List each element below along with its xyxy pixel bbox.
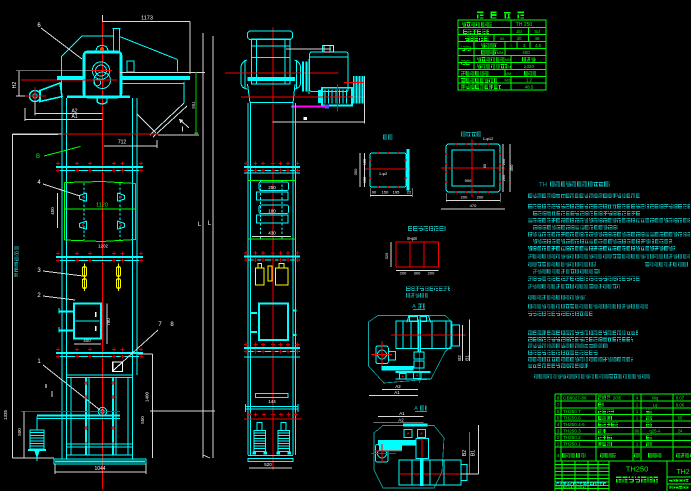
svg-text:TH250.3: TH250.3 — [563, 429, 581, 434]
svg-text:TH250.4-5: TH250.4-5 — [563, 422, 585, 427]
svg-text:450: 450 — [50, 207, 55, 215]
svg-text:65: 65 — [678, 416, 683, 421]
svg-text:II: II — [45, 384, 48, 390]
svg-text:90: 90 — [372, 190, 377, 195]
svg-text:B2: B2 — [457, 355, 462, 361]
svg-text:≥320: ≥320 — [524, 64, 534, 69]
svg-text:Sd: Sd — [534, 29, 540, 34]
svg-text:KN: KN — [505, 64, 511, 69]
svg-text:200: 200 — [502, 175, 506, 181]
svg-text:400: 400 — [522, 50, 530, 55]
svg-text:1202: 1202 — [98, 244, 109, 249]
svg-text:Mq: Mq — [652, 395, 658, 400]
svg-text:155: 155 — [363, 177, 367, 183]
svg-text:TH2: TH2 — [676, 469, 689, 476]
svg-text:900: 900 — [465, 178, 472, 183]
svg-text:195: 195 — [393, 190, 400, 195]
svg-text:A2: A2 — [398, 418, 404, 423]
svg-text:Lq: Lq — [653, 402, 658, 407]
svg-text:325: 325 — [384, 252, 389, 259]
svg-text:TH: TH — [539, 183, 547, 189]
svg-text:H2: H2 — [12, 82, 18, 89]
svg-text:8-φ8: 8-φ8 — [407, 236, 417, 241]
svg-text:A2: A2 — [395, 384, 401, 389]
svg-text:8.07: 8.07 — [676, 395, 685, 400]
svg-text:M/S: M/S — [504, 78, 511, 83]
svg-text:1044: 1044 — [94, 466, 105, 472]
svg-text:200: 200 — [502, 159, 506, 165]
svg-text:200: 200 — [428, 271, 435, 276]
svg-text:q25-A: q25-A — [649, 429, 660, 434]
svg-text:155: 155 — [363, 159, 367, 165]
svg-text:712: 712 — [118, 140, 127, 146]
svg-text:450: 450 — [509, 164, 514, 171]
svg-text:MM: MM — [505, 57, 512, 62]
svg-text:B1: B1 — [471, 450, 477, 456]
svg-text:470: 470 — [470, 203, 477, 208]
svg-text:TH250.2: TH250.2 — [563, 435, 581, 440]
svg-text:A1: A1 — [394, 390, 400, 395]
svg-text:A1: A1 — [71, 114, 77, 120]
svg-text:TH250: TH250 — [626, 465, 649, 474]
svg-text:1173: 1173 — [141, 16, 153, 22]
svg-text:l: l — [511, 43, 512, 48]
svg-text:30: 30 — [500, 36, 505, 41]
svg-text:250: 250 — [268, 185, 276, 190]
svg-text:B1: B1 — [465, 355, 470, 361]
svg-text:TH250.1: TH250.1 — [563, 442, 581, 447]
svg-text:300: 300 — [414, 271, 421, 276]
svg-text:500: 500 — [17, 428, 22, 436]
svg-text:1335: 1335 — [3, 409, 8, 420]
svg-text:MM: MM — [505, 71, 512, 76]
svg-text:1-φ2: 1-φ2 — [379, 171, 388, 176]
svg-text:430: 430 — [268, 231, 276, 236]
svg-text:48: 48 — [534, 36, 540, 41]
svg-text:180: 180 — [268, 209, 276, 214]
svg-text:200: 200 — [461, 195, 468, 200]
svg-text:24: 24 — [678, 429, 683, 434]
svg-text:30: 30 — [516, 36, 522, 41]
svg-text:B2: B2 — [462, 450, 468, 456]
svg-text:Zd: Zd — [516, 29, 522, 34]
svg-text:1-φ12: 1-φ12 — [483, 136, 494, 141]
svg-text:200: 200 — [477, 195, 484, 200]
svg-text:1.2: 1.2 — [526, 78, 533, 83]
svg-text:66: 66 — [635, 429, 640, 434]
svg-text:B: B — [36, 154, 40, 160]
svg-text:4.5: 4.5 — [535, 43, 542, 48]
svg-text:TH250.6: TH250.6 — [563, 416, 581, 421]
svg-text:144: 144 — [268, 399, 276, 404]
svg-text:1400: 1400 — [145, 391, 150, 402]
svg-text:9.06: 9.06 — [676, 402, 685, 407]
svg-text:520: 520 — [264, 462, 272, 467]
svg-text:150: 150 — [382, 190, 389, 195]
svg-text:400: 400 — [83, 338, 91, 343]
svg-text:MM: MM — [497, 50, 504, 55]
svg-text:550: 550 — [140, 416, 145, 424]
svg-text:780: 780 — [106, 318, 111, 326]
svg-text:350: 350 — [353, 168, 358, 175]
svg-text:TH250.7: TH250.7 — [563, 409, 581, 414]
svg-text:22: 22 — [407, 190, 412, 195]
svg-text:48.5: 48.5 — [525, 85, 534, 90]
svg-text:65: 65 — [483, 164, 487, 168]
svg-text:756: 756 — [191, 101, 196, 109]
svg-text:1120: 1120 — [96, 203, 108, 209]
svg-text:20\5: 20\5 — [613, 396, 622, 401]
svg-text:A1: A1 — [399, 411, 405, 416]
svg-text:200: 200 — [400, 271, 407, 276]
svg-text:TH 250: TH 250 — [516, 22, 533, 28]
svg-text:GB8027-86: GB8027-86 — [563, 395, 587, 400]
